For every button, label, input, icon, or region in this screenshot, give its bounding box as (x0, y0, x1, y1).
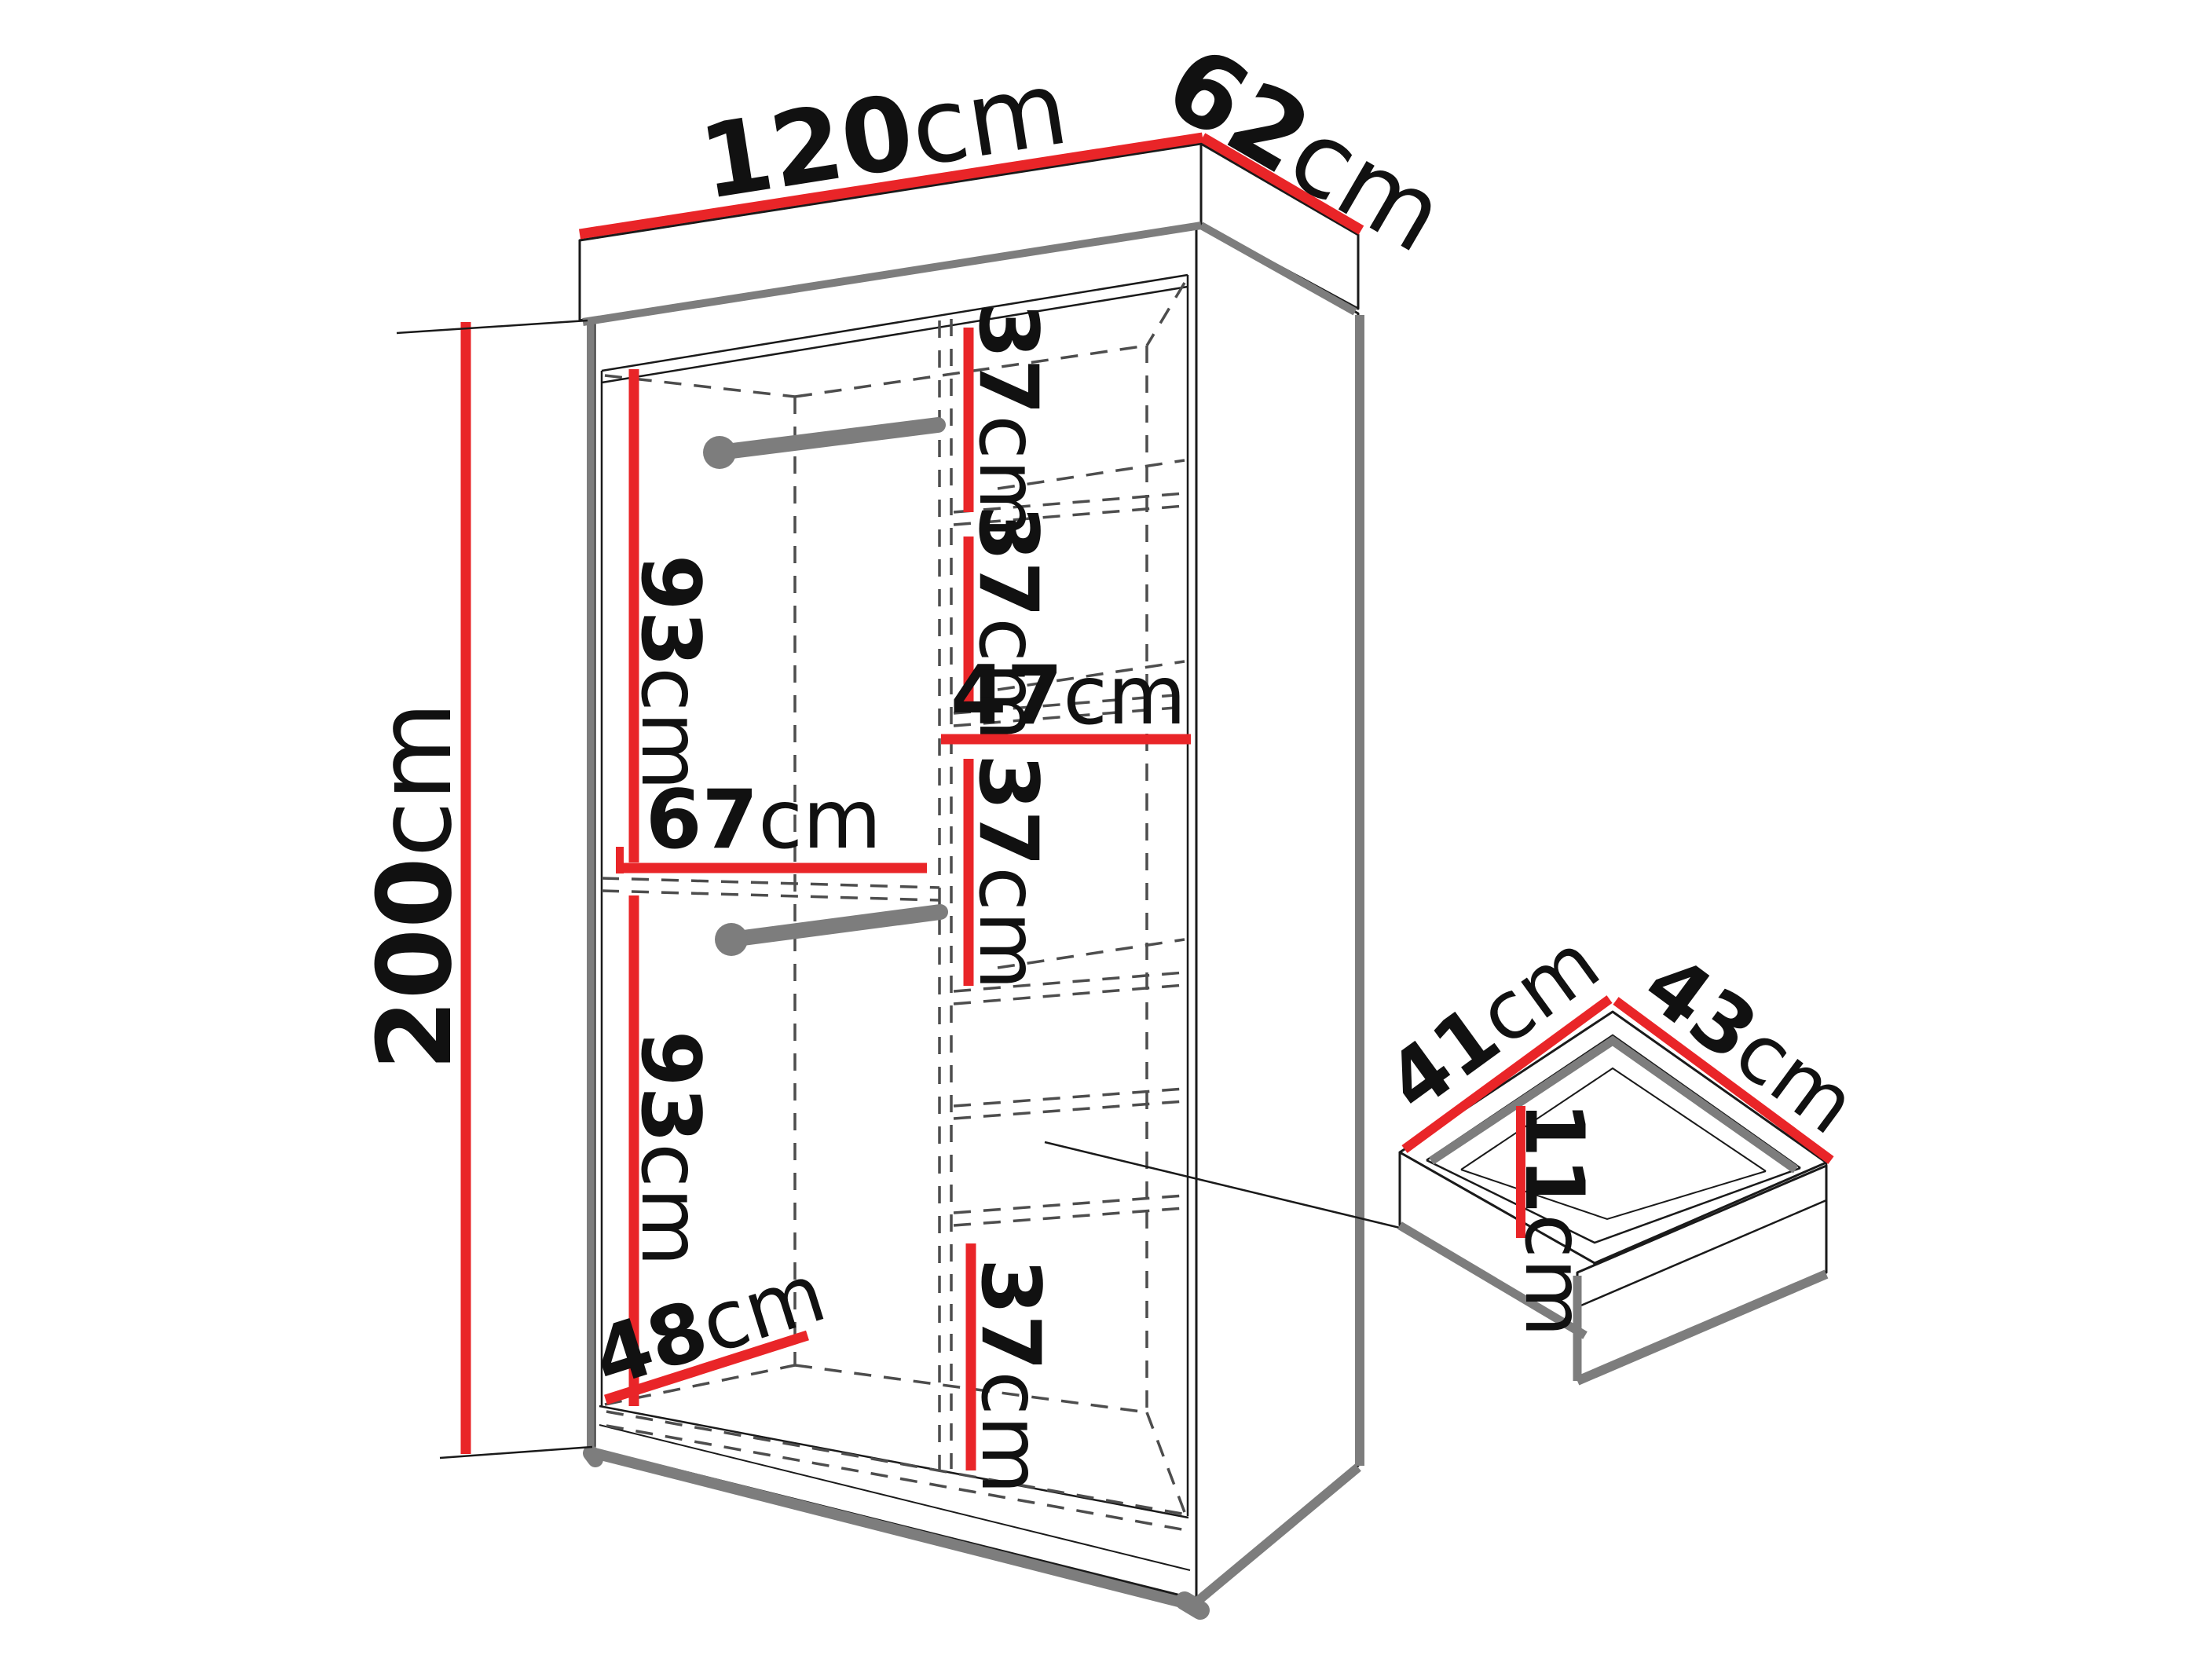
label-shelf-gap-1-37: 37cm (961, 302, 1055, 538)
label-hanging-lower-93: 93cm (623, 1031, 717, 1266)
front-right-foot (1185, 1601, 1200, 1610)
label-shelf-gap-4-37: 37cm (963, 1258, 1057, 1494)
wardrobe-right-side-face (1196, 224, 1358, 1599)
dim-ext-200-top (397, 320, 588, 333)
wardrobe-dimensions-diagram: 120cm 62cm 200cm 93cm 93cm 67cm 47cm 37c… (0, 0, 2212, 1659)
label-height-200: 200cm (355, 701, 474, 1071)
label-shelf-gap-2-37: 37cm (961, 505, 1055, 741)
label-shelf-gap-3-37: 37cm (961, 754, 1055, 990)
front-left-foot (591, 1453, 595, 1459)
label-drawer-depth-11: 11cm (1507, 1101, 1601, 1337)
label-hanging-upper-93: 93cm (623, 555, 717, 790)
label-left-width-67: 67cm (646, 773, 881, 867)
